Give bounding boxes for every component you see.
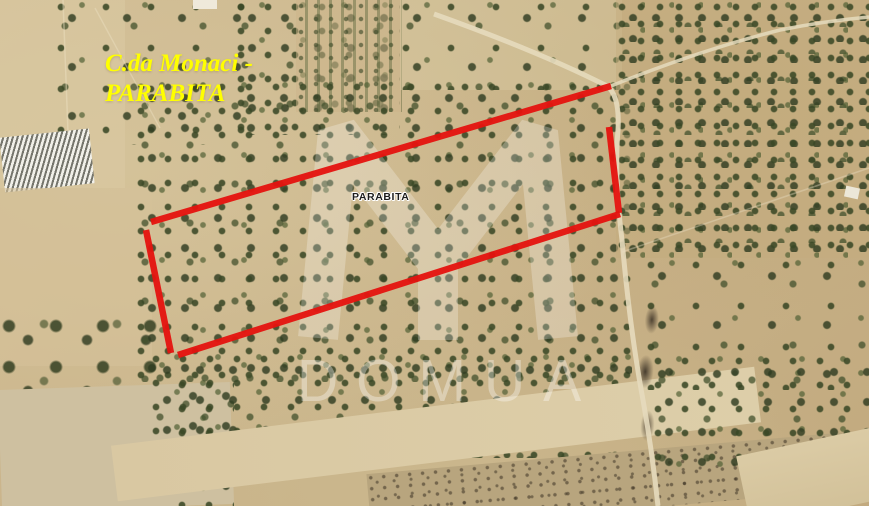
watermark-wordmark: DOMUA: [297, 347, 599, 416]
building-white-roof-top: [193, 0, 217, 9]
terrain-greenhouse-rows: [0, 128, 95, 192]
location-title: C.da Monaci - PARABITA: [105, 49, 253, 108]
aerial-photo-stage: DOMUA PARABITA C.da Monaci - PARABITA: [0, 0, 869, 506]
location-title-line2: PARABITA: [105, 79, 253, 109]
place-label: PARABITA: [352, 191, 410, 203]
terrain-field-top-center: [400, 0, 622, 90]
terrain-orchard-top-right: [616, 0, 869, 258]
terrain-olive-grove-central: [135, 80, 632, 382]
location-title-line1: C.da Monaci -: [105, 49, 253, 79]
